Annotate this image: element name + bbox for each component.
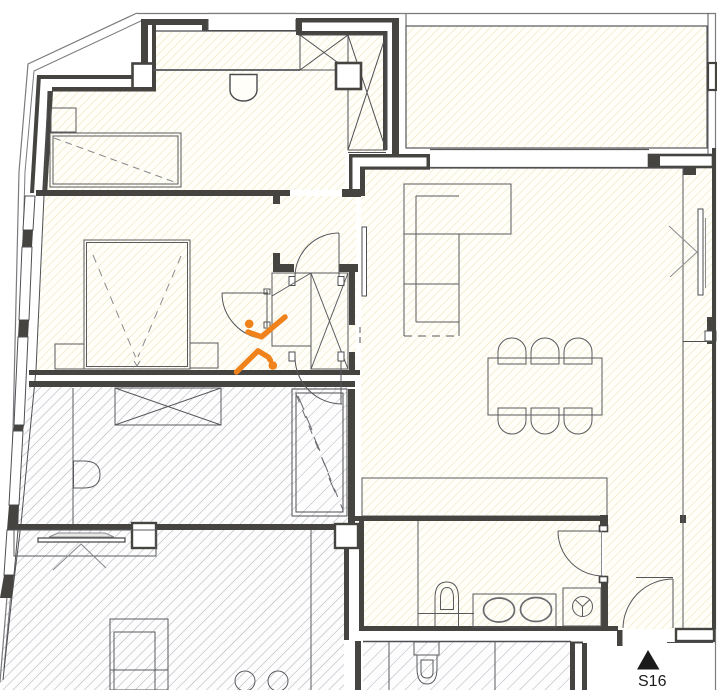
- svg-text:S16: S16: [638, 673, 667, 690]
